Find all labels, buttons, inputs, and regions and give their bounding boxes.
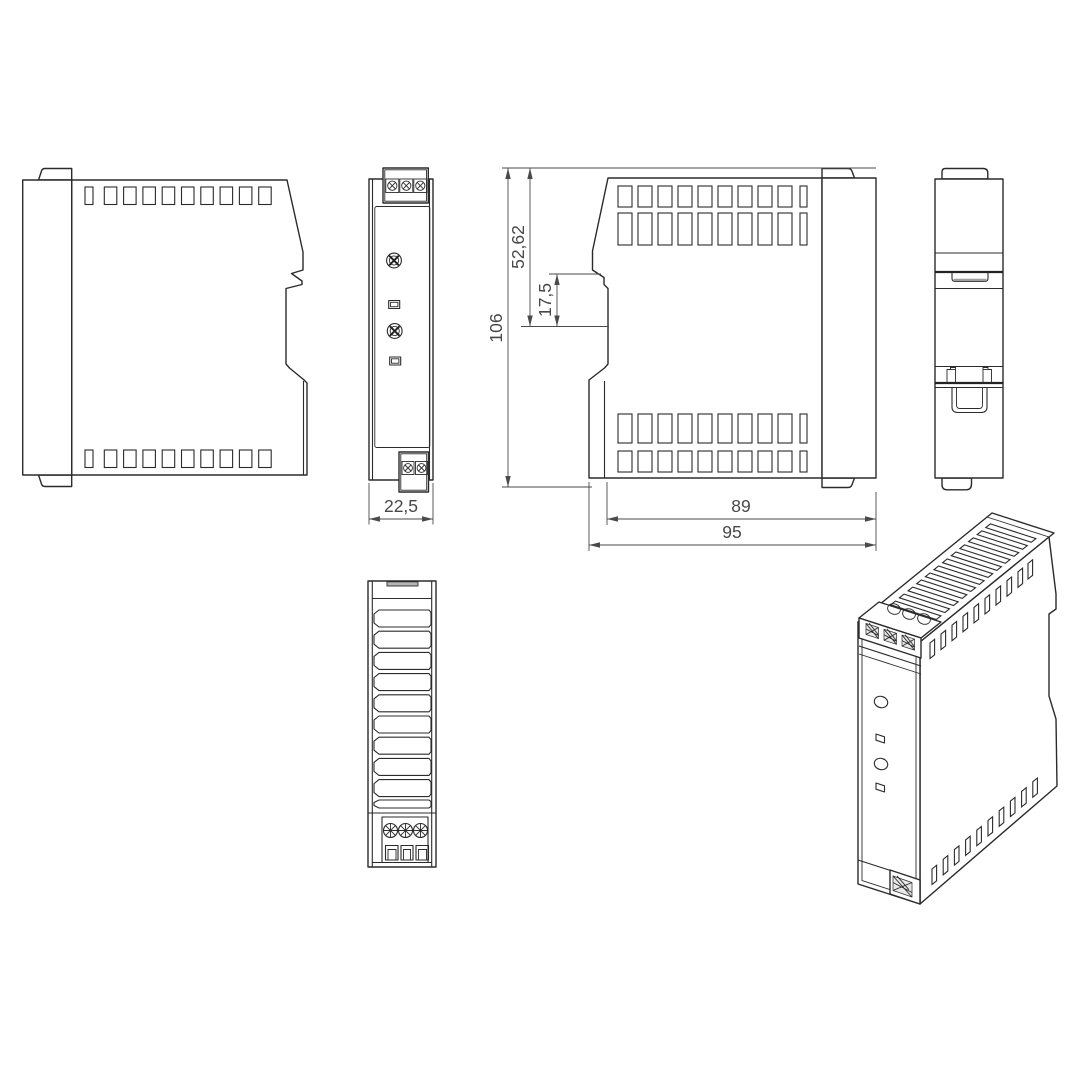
terminal-screw — [384, 824, 398, 838]
mount-tab-bottom — [39, 475, 72, 487]
front-body-outline — [369, 179, 433, 480]
mount-tab-top — [822, 169, 855, 179]
top-view — [368, 581, 436, 867]
mount-tab-top — [39, 169, 72, 181]
dim-label-overall-depth: 95 — [722, 522, 741, 542]
dimension-clip-offset: 17,5 — [535, 274, 601, 327]
terminal-block-bottom — [399, 452, 429, 492]
terminal-block-top — [383, 168, 428, 203]
mount-tab-bottom — [822, 478, 855, 488]
side-left-body-outline — [72, 180, 307, 475]
vent-slots-bottom-rows — [618, 414, 807, 472]
side-view-dimensioned: 106 52,62 17,5 89 — [486, 168, 876, 551]
rear-body-outline — [935, 179, 1003, 478]
isometric-view — [858, 513, 1057, 904]
mount-tab-bottom — [942, 478, 972, 490]
plate-edge-strip — [387, 582, 418, 586]
front-view: 22,5 — [369, 168, 433, 525]
dim-label-clip-offset: 17,5 — [535, 283, 555, 317]
iso-front-face — [858, 622, 920, 904]
front-plate-edge — [23, 180, 72, 475]
dim-label-overall-height: 106 — [486, 313, 506, 342]
front-plate-edge — [822, 178, 876, 478]
vent-slots-top-rows — [618, 186, 807, 245]
dimension-overall-depth: 95 — [589, 482, 876, 551]
mount-tab-top — [942, 169, 988, 180]
dim-label-front-width: 22,5 — [384, 496, 418, 516]
technical-drawing-page: 22,5 — [0, 0, 1080, 1080]
dim-label-upper-height: 52,62 — [508, 225, 528, 269]
dim-label-body-depth: 89 — [731, 496, 750, 516]
rear-view — [935, 169, 1003, 490]
technical-drawing-canvas: 22,5 — [0, 0, 1080, 1080]
terminal-screw — [414, 824, 428, 838]
side-view-left — [23, 169, 307, 487]
terminal-screw — [399, 824, 413, 838]
